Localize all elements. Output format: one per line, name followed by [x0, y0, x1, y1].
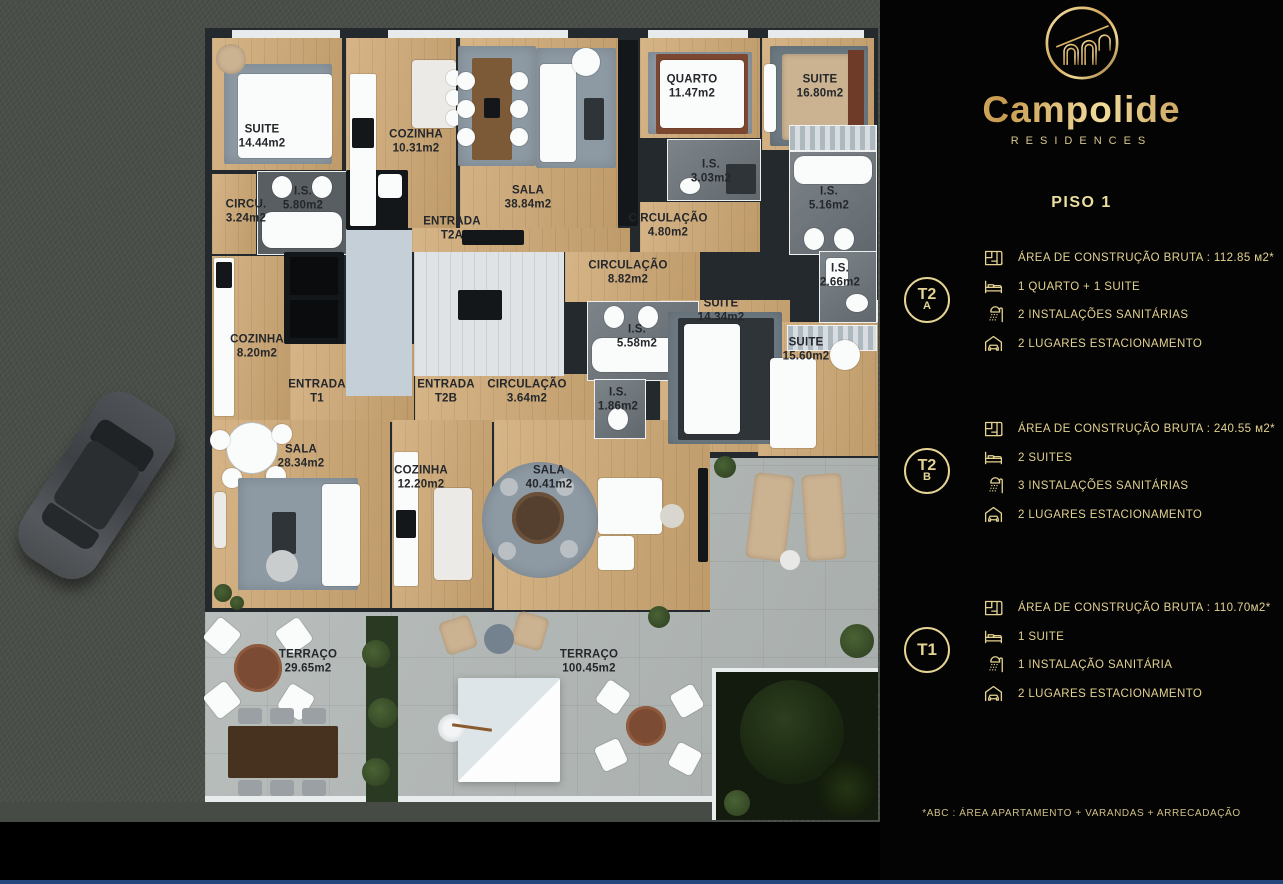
terrace-palm — [840, 624, 874, 658]
room-label: I.S. 3.03m2 — [691, 158, 731, 185]
room-name: ENTRADA — [423, 215, 481, 229]
room-label: ENTRADA T2A — [423, 215, 481, 242]
unit-spec-row: 2 LUGARES ESTACIONAMENTO — [983, 680, 1272, 709]
garden-bush — [724, 790, 750, 816]
spec-text: 3 INSTALAÇÕES SANITÁRIAS — [1018, 480, 1188, 492]
stair-landing — [458, 290, 502, 320]
room-area: T2A — [423, 229, 481, 243]
room-name: SUITE — [239, 123, 286, 137]
shower-icon — [983, 305, 1004, 326]
room-name: SUITE — [698, 297, 745, 311]
stove — [216, 262, 232, 288]
dining-chair — [457, 72, 475, 90]
outdoor-chair — [302, 708, 326, 724]
hedge-plant — [362, 758, 390, 786]
room-name: CIRCULAÇÃO — [588, 259, 667, 273]
room-label: CIRCULAÇÃO 3.64m2 — [487, 378, 566, 405]
room-area: 28.34m2 — [278, 457, 325, 471]
arches-bridge-icon — [1043, 4, 1121, 82]
unit-spec-row: ÁREA DE CONSTRUÇÃO BRUTA : 112.85 м2* — [983, 244, 1272, 273]
unit-spec-row: 1 QUARTO + 1 SUITE — [983, 273, 1272, 302]
unit-spec-row: ÁREA DE CONSTRUÇÃO BRUTA : 240.55 м2* — [983, 415, 1272, 444]
bed — [770, 358, 816, 448]
spec-text: 2 LUGARES ESTACIONAMENTO — [1018, 688, 1202, 700]
unit-badge-type: T1 — [917, 642, 937, 657]
outdoor-dining-table — [228, 726, 338, 778]
bathtub — [794, 156, 872, 184]
garden-palm — [818, 760, 876, 818]
room-area: 29.65m2 — [279, 662, 337, 676]
unit-spec-row: 1 INSTALAÇÃO SANITÁRIA — [983, 651, 1272, 680]
room-area: 8.82m2 — [588, 273, 667, 287]
hedge-plant — [368, 698, 398, 728]
unit-badge: T2 B — [904, 448, 950, 494]
room-label: CIRCULAÇÃO 8.82m2 — [588, 259, 667, 286]
room-name: COZINHA — [230, 333, 284, 347]
room-name: I.S. — [617, 323, 657, 337]
bench — [764, 64, 776, 132]
brand-name: Campolide — [880, 89, 1283, 131]
room-name: SUITE — [783, 336, 830, 350]
brand-subtitle: RESIDENCES — [880, 135, 1283, 147]
sink — [834, 228, 854, 250]
sofa — [540, 64, 576, 162]
room-label: SUITE 14.34m2 — [698, 297, 745, 324]
room-area: 10.31m2 — [389, 142, 443, 156]
outdoor-chair — [238, 708, 262, 724]
room-area: 38.84m2 — [505, 198, 552, 212]
plant — [230, 596, 244, 610]
shower-icon — [983, 476, 1004, 497]
outdoor-chair — [270, 708, 294, 724]
balcony-ledge — [388, 30, 568, 38]
spec-text: 2 SUITES — [1018, 452, 1072, 464]
spec-text: 2 LUGARES ESTACIONAMENTO — [1018, 338, 1202, 350]
unit-spec-row: 3 INSTALAÇÕES SANITÁRIAS — [983, 472, 1272, 501]
room-name: I.S. — [820, 262, 860, 276]
spec-text: 2 LUGARES ESTACIONAMENTO — [1018, 509, 1202, 521]
room-area: 5.16m2 — [809, 199, 849, 213]
plant — [648, 606, 670, 628]
room-area: 3.03m2 — [691, 172, 731, 186]
unit-badge: T2 A — [904, 277, 950, 323]
room-area: 100.45m2 — [560, 662, 618, 676]
room-name: SALA — [505, 184, 552, 198]
room-area: 15.60m2 — [783, 350, 830, 364]
room-name: ENTRADA — [417, 378, 475, 392]
unit-spec-row: 2 SUITES — [983, 444, 1272, 473]
outdoor-chair — [238, 780, 262, 796]
round-dining-table — [512, 492, 564, 544]
floorplan-icon — [983, 598, 1004, 619]
room-label: I.S. 1.86m2 — [598, 386, 638, 413]
swivel-chair — [266, 550, 298, 582]
bed-icon — [983, 276, 1004, 297]
unit-rows: ÁREA DE CONSTRUÇÃO BRUTA : 110.70м2* 1 S… — [983, 594, 1272, 708]
screenshot-root: SUITE 14.44m2 COZINHA 10.31m2 I.S. 5.80m… — [0, 0, 1283, 884]
plant — [214, 584, 232, 602]
room-area: 1.86m2 — [598, 400, 638, 414]
floorplan-icon — [983, 248, 1004, 269]
room-label: ENTRADA T2B — [417, 378, 475, 405]
unit-spec-block: T2 A ÁREA DE CONSTRUÇÃO BRUTA : 112.85 м… — [900, 244, 1272, 360]
room-area: 2.66m2 — [820, 276, 860, 290]
room-name: COZINHA — [394, 464, 448, 478]
elevator-cab — [290, 300, 338, 338]
room-label: SALA 28.34m2 — [278, 443, 325, 470]
bed-icon — [983, 447, 1004, 468]
unit-spec-row: 2 INSTALAÇÕES SANITÁRIAS — [983, 301, 1272, 330]
chair — [498, 542, 516, 560]
dining-chair — [510, 72, 528, 90]
room-name: SALA — [526, 464, 573, 478]
spec-text: ÁREA DE CONSTRUÇÃO BRUTA : 110.70м2* — [1018, 602, 1271, 614]
lounger-table — [780, 550, 800, 570]
elevator-cab — [290, 257, 338, 295]
round-table — [227, 423, 277, 473]
sofa-chaise — [598, 536, 634, 570]
room-label: TERRAÇO 29.65m2 — [279, 648, 337, 675]
room-name: I.S. — [598, 386, 638, 400]
street-bottom — [0, 802, 712, 822]
terrace-table — [626, 706, 666, 746]
room-label: SUITE 16.80m2 — [797, 73, 844, 100]
room-name: CIRCULAÇÃO — [628, 212, 707, 226]
room-label: SALA 40.41m2 — [526, 464, 573, 491]
room-name: SALA — [278, 443, 325, 457]
room-label: CIRCULAÇÃO 4.80m2 — [628, 212, 707, 239]
garage-icon — [983, 683, 1004, 704]
terrace-table — [234, 644, 282, 692]
pergola-canopy — [458, 678, 560, 782]
spec-text: ÁREA DE CONSTRUÇÃO BRUTA : 112.85 м2* — [1018, 252, 1274, 264]
unit-spec-row: ÁREA DE CONSTRUÇÃO BRUTA : 110.70м2* — [983, 594, 1272, 623]
bottom-accent-bar — [0, 880, 1283, 884]
washer — [378, 174, 402, 198]
room-area: 14.34m2 — [698, 311, 745, 325]
wardrobe-column — [618, 40, 638, 226]
common-corridor — [346, 230, 412, 396]
room-area: 14.44m2 — [239, 137, 286, 151]
room-area: 8.20m2 — [230, 347, 284, 361]
bathtub — [262, 212, 342, 248]
room-label: SUITE 15.60m2 — [783, 336, 830, 363]
chair — [560, 540, 578, 558]
room-area: T1 — [288, 392, 346, 406]
plant — [714, 456, 736, 478]
dining-chair — [457, 100, 475, 118]
kitchen-island — [434, 488, 472, 580]
coffee-table — [584, 98, 604, 140]
room-area: 4.80m2 — [628, 226, 707, 240]
room-area: 3.24m2 — [226, 212, 267, 226]
shower-icon — [983, 655, 1004, 676]
closet — [790, 126, 876, 150]
room-area: 3.64m2 — [487, 392, 566, 406]
room-label: I.S. 5.80m2 — [283, 185, 323, 212]
bed-icon — [983, 626, 1004, 647]
spec-text: 1 INSTALAÇÃO SANITÁRIA — [1018, 659, 1172, 671]
side-table — [660, 504, 684, 528]
outdoor-chair — [270, 780, 294, 796]
spec-text: 1 QUARTO + 1 SUITE — [1018, 281, 1140, 293]
spec-text: 2 INSTALAÇÕES SANITÁRIAS — [1018, 309, 1188, 321]
unit-rows: ÁREA DE CONSTRUÇÃO BRUTA : 240.55 м2* 2 … — [983, 415, 1272, 529]
balcony-ledge — [768, 30, 864, 38]
room-area: 40.41m2 — [526, 478, 573, 492]
dining-chair — [510, 128, 528, 146]
table-centerpiece — [484, 98, 500, 118]
unit-spec-block: T2 B ÁREA DE CONSTRUÇÃO BRUTA : 240.55 м… — [900, 415, 1272, 531]
balcony-ledge — [648, 30, 748, 38]
room-label: COZINHA 12.20m2 — [394, 464, 448, 491]
room-area: T2B — [417, 392, 475, 406]
spec-text: ÁREA DE CONSTRUÇÃO BRUTA : 240.55 м2* — [1018, 423, 1275, 435]
coffee-table — [272, 512, 296, 554]
unit-badge-letter: A — [923, 302, 931, 312]
garage-icon — [983, 504, 1004, 525]
room-name: CIRCULAÇÃO — [487, 378, 566, 392]
room-label: QUARTO 11.47m2 — [667, 73, 718, 100]
room-label: TERRAÇO 100.45m2 — [560, 648, 618, 675]
kitchen-counter — [350, 74, 376, 226]
balcony-ledge — [232, 30, 340, 38]
tv-console — [698, 468, 708, 562]
stove — [352, 118, 374, 148]
room-label: I.S. 2.66m2 — [820, 262, 860, 289]
room-label: ENTRADA T1 — [288, 378, 346, 405]
info-panel: Campolide RESIDENCES PISO 1 T2 A ÁREA DE… — [880, 0, 1283, 884]
room-label: COZINHA 10.31m2 — [389, 128, 443, 155]
room-label: CIRCU. 3.24m2 — [226, 198, 267, 225]
unit-spec-row: 2 LUGARES ESTACIONAMENTO — [983, 330, 1272, 359]
room-label: I.S. 5.16m2 — [809, 185, 849, 212]
room-name: QUARTO — [667, 73, 718, 87]
lounge-chair — [572, 48, 600, 76]
room-name: ENTRADA — [288, 378, 346, 392]
dining-chair — [457, 128, 475, 146]
dining-chair — [510, 100, 528, 118]
console — [214, 492, 226, 548]
sink — [804, 228, 824, 250]
room-label: COZINHA 8.20m2 — [230, 333, 284, 360]
armchair — [216, 44, 246, 74]
room-name: I.S. — [691, 158, 731, 172]
chair — [210, 430, 230, 450]
room-area: 16.80m2 — [797, 87, 844, 101]
room-label: I.S. 5.58m2 — [617, 323, 657, 350]
floorplan-icon — [983, 419, 1004, 440]
stove — [396, 510, 416, 538]
room-name: SUITE — [797, 73, 844, 87]
brand-logo: Campolide RESIDENCES — [880, 4, 1283, 147]
outdoor-chair — [302, 780, 326, 796]
unit-spec-row: 1 SUITE — [983, 623, 1272, 652]
unit-spec-block: T1 ÁREA DE CONSTRUÇÃO BRUTA : 110.70м2* … — [900, 594, 1272, 710]
parasol — [438, 714, 466, 742]
room-name: TERRAÇO — [560, 648, 618, 662]
sink — [846, 294, 868, 312]
room-name: I.S. — [283, 185, 323, 199]
unit-rows: ÁREA DE CONSTRUÇÃO BRUTA : 112.85 м2* 1 … — [983, 244, 1272, 358]
bed — [684, 324, 740, 434]
room-name: CIRCU. — [226, 198, 267, 212]
room-name: I.S. — [809, 185, 849, 199]
room-name: TERRAÇO — [279, 648, 337, 662]
unit-badge-letter: B — [923, 473, 931, 483]
room-label: SALA 38.84m2 — [505, 184, 552, 211]
chair — [500, 478, 518, 496]
floor-title: PISO 1 — [880, 194, 1283, 212]
room-area: 5.58m2 — [617, 337, 657, 351]
hedge-plant — [362, 640, 390, 668]
armchair — [830, 340, 860, 370]
sofa — [322, 484, 360, 586]
sun-lounger — [801, 473, 847, 562]
footnote: *ABC : ÁREA APARTAMENTO + VARANDAS + ARR… — [880, 808, 1283, 819]
garage-icon — [983, 333, 1004, 354]
room-area: 12.20m2 — [394, 478, 448, 492]
room-area: 11.47m2 — [667, 87, 718, 101]
unit-spec-row: 2 LUGARES ESTACIONAMENTO — [983, 501, 1272, 530]
unit-badge: T1 — [904, 627, 950, 673]
sofa — [598, 478, 662, 534]
room-area: 5.80m2 — [283, 199, 323, 213]
chair — [272, 424, 292, 444]
room-name: COZINHA — [389, 128, 443, 142]
terrace-side-table — [484, 624, 514, 654]
room-label: SUITE 14.44m2 — [239, 123, 286, 150]
spec-text: 1 SUITE — [1018, 631, 1064, 643]
floor-plan: SUITE 14.44m2 COZINHA 10.31m2 I.S. 5.80m… — [0, 0, 880, 884]
